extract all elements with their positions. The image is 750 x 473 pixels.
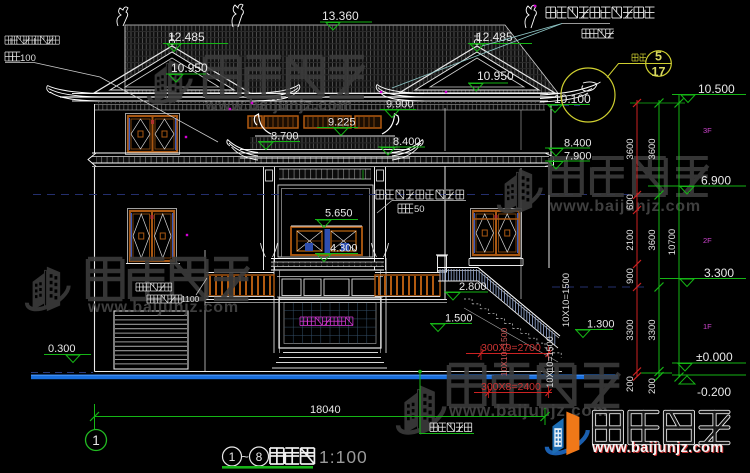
svg-text:10.950: 10.950 — [171, 61, 208, 75]
svg-text:www.baijunjz.com: www.baijunjz.com — [87, 299, 239, 316]
svg-text:3F: 3F — [703, 126, 712, 135]
svg-text:3600: 3600 — [647, 138, 658, 159]
svg-text:±0.000: ±0.000 — [696, 350, 733, 364]
svg-text:200: 200 — [647, 378, 658, 394]
svg-text:4.300: 4.300 — [330, 243, 358, 255]
svg-text:1: 1 — [229, 450, 236, 464]
svg-text:1.500: 1.500 — [445, 313, 473, 325]
svg-text:12.485: 12.485 — [476, 30, 513, 44]
svg-text:1100: 1100 — [181, 294, 200, 304]
svg-text:8.400: 8.400 — [393, 136, 421, 148]
svg-text:10X10=1500: 10X10=1500 — [561, 273, 572, 327]
svg-text:1.300: 1.300 — [587, 319, 615, 331]
svg-text:2F: 2F — [703, 236, 712, 245]
svg-text:200: 200 — [625, 376, 636, 392]
svg-text:10X10=1500: 10X10=1500 — [545, 336, 555, 387]
svg-text:8: 8 — [256, 450, 263, 464]
svg-text:12.485: 12.485 — [168, 30, 205, 44]
svg-text:2.800: 2.800 — [459, 281, 487, 293]
svg-text:3300: 3300 — [647, 319, 658, 340]
svg-text:9.225: 9.225 — [328, 117, 356, 129]
svg-text:10.500: 10.500 — [698, 82, 735, 96]
svg-text:www.baijunjz.com: www.baijunjz.com — [591, 440, 724, 456]
svg-text:600: 600 — [625, 194, 636, 210]
svg-text:5.650: 5.650 — [325, 208, 353, 220]
svg-text:3600: 3600 — [625, 138, 636, 159]
svg-text:3.300: 3.300 — [704, 266, 734, 280]
svg-text:1F: 1F — [703, 322, 712, 331]
svg-text:2100: 2100 — [625, 229, 636, 250]
svg-text:10X10=1500: 10X10=1500 — [499, 328, 509, 377]
svg-text:10.100: 10.100 — [554, 92, 591, 106]
svg-text:1: 1 — [92, 433, 100, 448]
svg-text:~: ~ — [241, 449, 249, 464]
svg-text:5: 5 — [655, 50, 662, 64]
svg-text:17: 17 — [652, 65, 666, 79]
svg-text:9.900: 9.900 — [386, 99, 414, 111]
svg-text:8.700: 8.700 — [271, 131, 299, 143]
svg-text:3600: 3600 — [647, 229, 658, 250]
svg-text:-0.200: -0.200 — [697, 385, 731, 399]
svg-text:13.360: 13.360 — [322, 9, 359, 23]
svg-text:50: 50 — [414, 204, 425, 215]
svg-text:0.300: 0.300 — [48, 343, 76, 355]
svg-text:3300: 3300 — [625, 319, 636, 340]
svg-text:www.baijunjz.com: www.baijunjz.com — [448, 401, 609, 420]
svg-text:900: 900 — [625, 268, 636, 284]
svg-text:1:100: 1:100 — [319, 447, 368, 467]
svg-text:www.baijunjz.com: www.baijunjz.com — [204, 97, 353, 114]
svg-text:18040: 18040 — [310, 404, 341, 416]
svg-text:300X9=2700: 300X9=2700 — [481, 342, 541, 354]
svg-text:10700: 10700 — [667, 229, 678, 255]
svg-text:10.950: 10.950 — [477, 69, 514, 83]
svg-text:6.900: 6.900 — [701, 174, 731, 188]
